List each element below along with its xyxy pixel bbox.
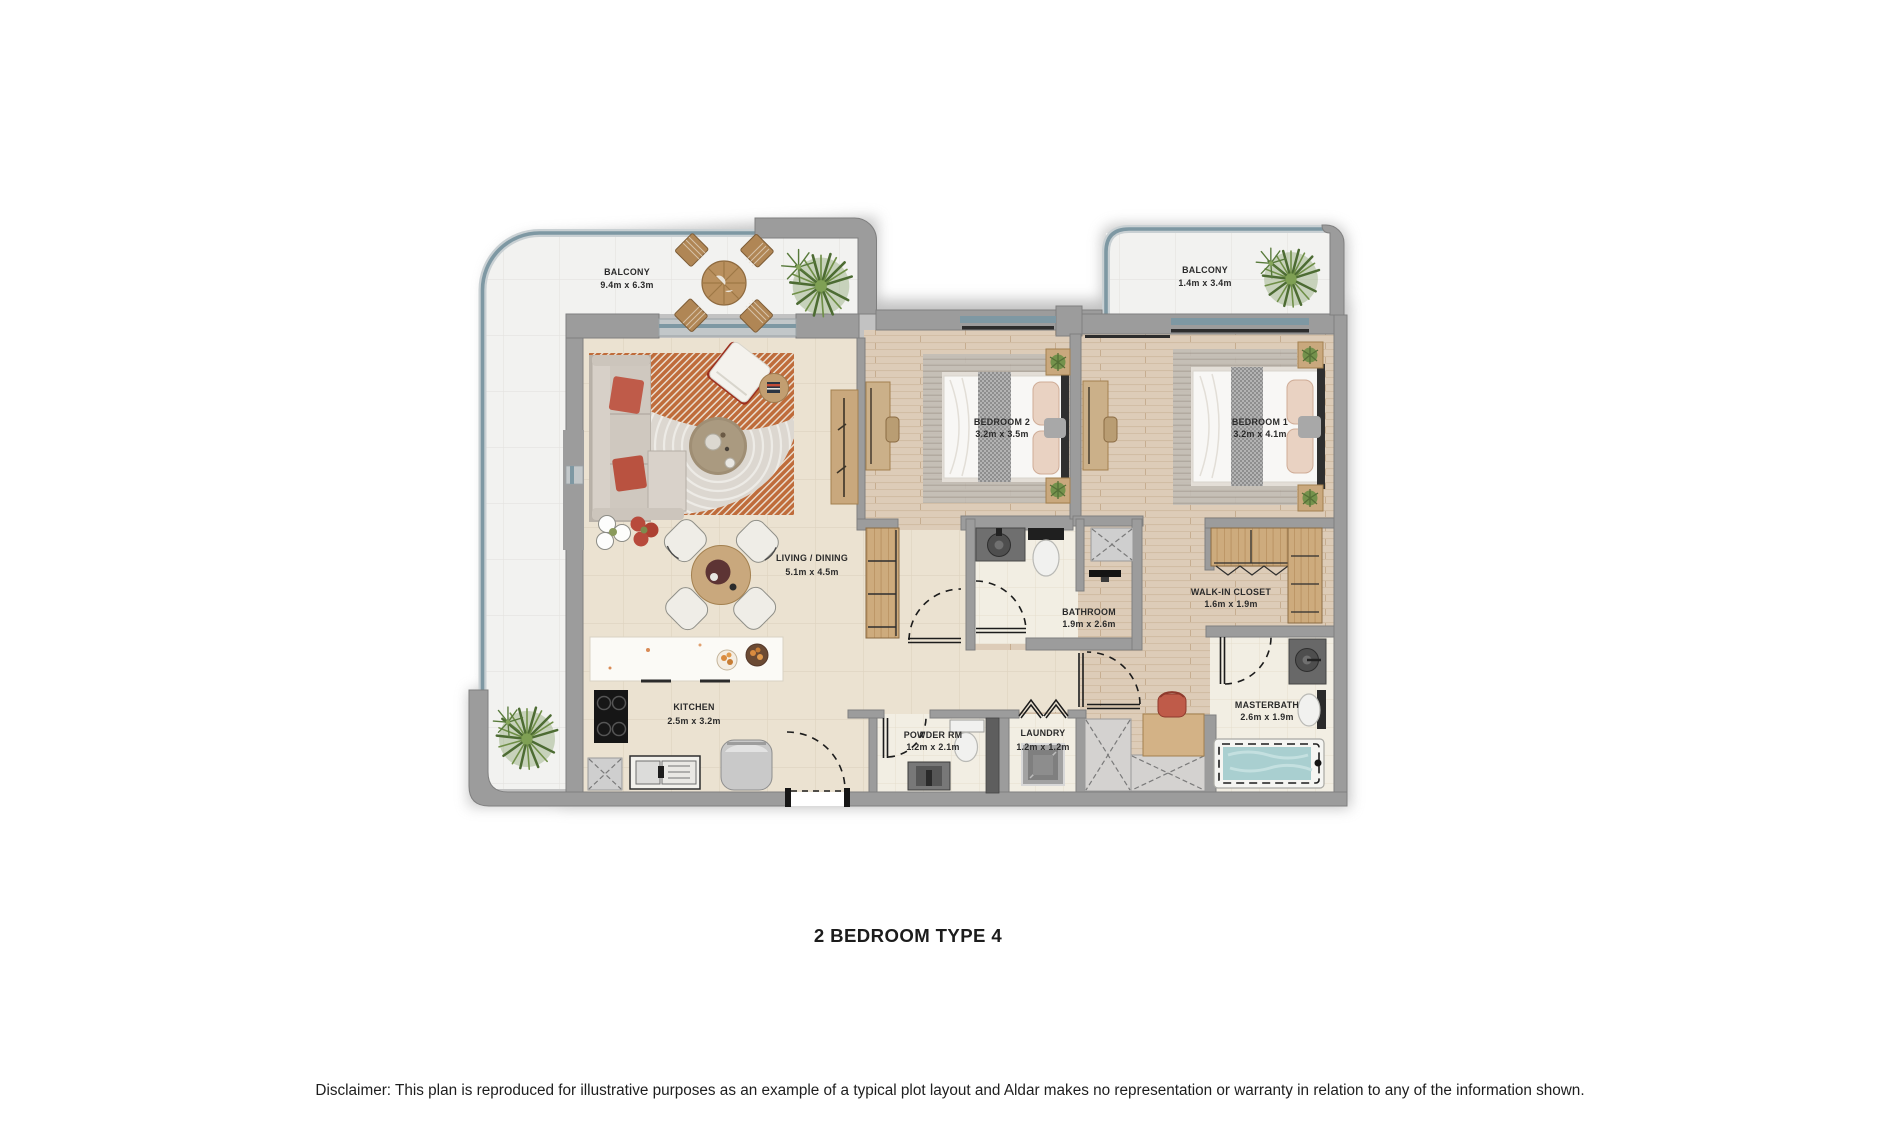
svg-text:3.2m x 3.5m: 3.2m x 3.5m [975,429,1028,439]
svg-text:2 BEDROOM TYPE 4: 2 BEDROOM TYPE 4 [814,925,1003,946]
svg-text:1.2m x 2.1m: 1.2m x 2.1m [906,742,959,752]
svg-text:5.1m x 4.5m: 5.1m x 4.5m [785,567,838,577]
svg-text:MASTERBATH: MASTERBATH [1235,700,1299,710]
svg-text:LIVING / DINING: LIVING / DINING [776,553,848,563]
svg-text:LAUNDRY: LAUNDRY [1021,728,1066,738]
svg-text:1.2m x 1.2m: 1.2m x 1.2m [1016,742,1069,752]
svg-text:3.2m x 4.1m: 3.2m x 4.1m [1233,429,1286,439]
svg-text:9.4m x 6.3m: 9.4m x 6.3m [600,280,653,290]
svg-text:WALK-IN CLOSET: WALK-IN CLOSET [1191,587,1271,597]
svg-text:POWDER RM: POWDER RM [904,730,963,740]
svg-text:Disclaimer: This plan is repro: Disclaimer: This plan is reproduced for … [315,1082,1584,1099]
svg-text:2.6m x 1.9m: 2.6m x 1.9m [1240,712,1293,722]
svg-text:BEDROOM 1: BEDROOM 1 [1232,417,1288,427]
svg-text:1.9m x 2.6m: 1.9m x 2.6m [1062,619,1115,629]
svg-text:2.5m x 3.2m: 2.5m x 3.2m [667,716,720,726]
svg-text:1.6m x 1.9m: 1.6m x 1.9m [1204,599,1257,609]
svg-text:1.4m x 3.4m: 1.4m x 3.4m [1178,278,1231,288]
svg-text:KITCHEN: KITCHEN [673,702,714,712]
svg-text:BALCONY: BALCONY [604,267,650,277]
svg-text:BEDROOM 2: BEDROOM 2 [974,417,1030,427]
svg-text:BATHROOM: BATHROOM [1062,607,1116,617]
svg-text:BALCONY: BALCONY [1182,265,1228,275]
